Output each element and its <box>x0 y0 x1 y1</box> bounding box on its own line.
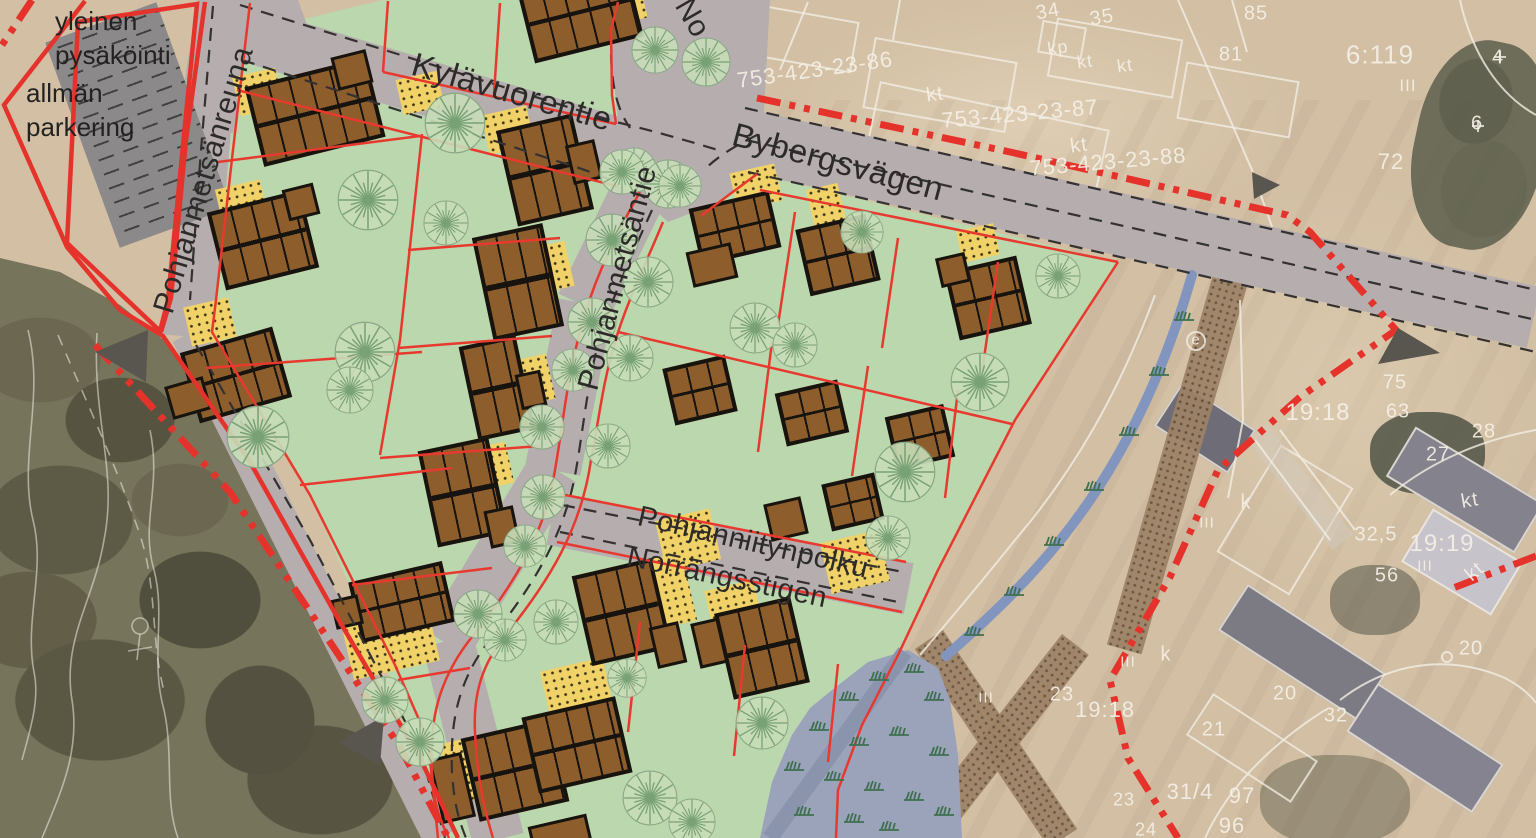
cadastral-label: 20 <box>1459 638 1483 661</box>
cadastral-label: III <box>1417 558 1433 575</box>
cadastral-label: 34 <box>1034 0 1062 25</box>
cadastral-label: 27 <box>1426 444 1450 467</box>
cadastral-label: 4 <box>1492 47 1504 70</box>
cadastral-label: 23 <box>1050 684 1074 707</box>
cadastral-label: 75 <box>1383 372 1407 395</box>
cadastral-label: 72 <box>1378 149 1404 175</box>
cadastral-label: kp <box>1046 36 1070 60</box>
cadastral-label: 6:119 <box>1346 40 1414 71</box>
cadastral-label: 81 <box>1219 44 1243 67</box>
cadastral-label: 23 <box>1113 790 1135 811</box>
cadastral-label: 35 <box>1088 5 1116 32</box>
cadastral-label: 24 <box>1135 820 1157 838</box>
cadastral-label: 85 <box>1244 3 1268 26</box>
cadastral-label: III <box>1120 654 1136 671</box>
cadastral-label: 21 <box>1202 719 1226 742</box>
cadastral-label: 753-423-23-87 <box>940 94 1099 134</box>
cadastral-label: III <box>1399 76 1416 96</box>
cadastral-label: III <box>978 690 994 707</box>
cadastral-label: 96 <box>1219 813 1245 838</box>
cadastral-label: 28 <box>1472 421 1496 444</box>
cadastral-label: 19:18 <box>1075 697 1135 723</box>
cadastral-label: 32 <box>1324 705 1348 728</box>
cadastral-label: 31/4 <box>1167 779 1214 805</box>
cadastral-label: 56 <box>1375 565 1399 588</box>
cadastral-label: 19:19 <box>1409 530 1474 558</box>
cadastral-label: kt <box>925 82 946 107</box>
cadastral-label: kt <box>1076 50 1095 73</box>
cadastral-label: 63 <box>1386 401 1410 424</box>
cadastral-label: 20 <box>1273 683 1297 706</box>
cadastral-label: k <box>1241 492 1252 515</box>
cadastral-label: k <box>1161 644 1172 667</box>
cadastral-label: 6 <box>1471 113 1483 136</box>
cadastral-label: kt <box>1461 558 1489 587</box>
cadastral-label: 32,5 <box>1355 524 1398 547</box>
cadastral-label: kt <box>1116 54 1135 77</box>
cadastral-label: 753-423-23-86 <box>735 46 894 94</box>
cadastral-label: 97 <box>1229 783 1255 809</box>
cadastral-label: III <box>1199 515 1215 532</box>
cadastral-label: kt <box>1459 488 1480 514</box>
cadastral-label: e <box>1191 332 1200 349</box>
cadastral-labels: 34358581753-423-23-86753-423-23-87753-42… <box>0 0 1536 838</box>
plan-map: yleinen pysäköinti allmän parkering Kylä… <box>0 0 1536 838</box>
cadastral-label: 19:18 <box>1285 399 1350 427</box>
cadastral-label: kt <box>1069 133 1090 158</box>
cadastral-label: 753-423-23-88 <box>1028 142 1187 182</box>
